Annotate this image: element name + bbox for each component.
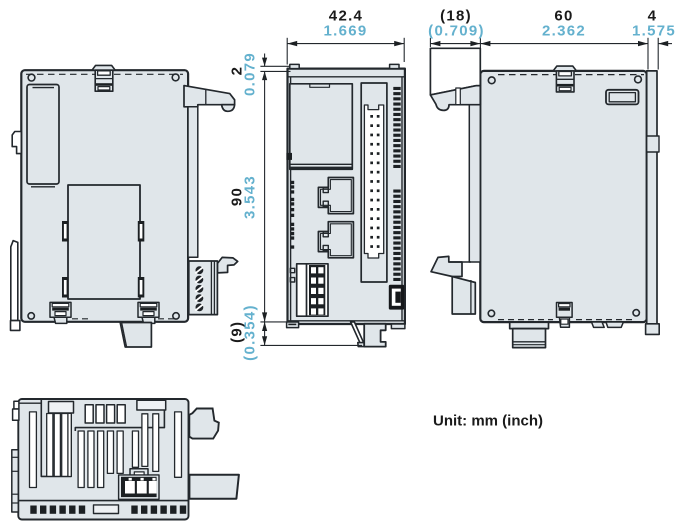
svg-text:Unit: mm (inch): Unit: mm (inch)	[433, 412, 543, 429]
svg-text:1.669: 1.669	[323, 23, 367, 40]
svg-text:0.079: 0.079	[242, 52, 259, 96]
svg-text:3.543: 3.543	[242, 175, 259, 219]
svg-text:(0.354): (0.354)	[242, 304, 259, 361]
svg-text:(0.709): (0.709)	[428, 23, 485, 40]
svg-text:2.362: 2.362	[542, 23, 586, 40]
svg-text:1.575: 1.575	[632, 23, 676, 40]
